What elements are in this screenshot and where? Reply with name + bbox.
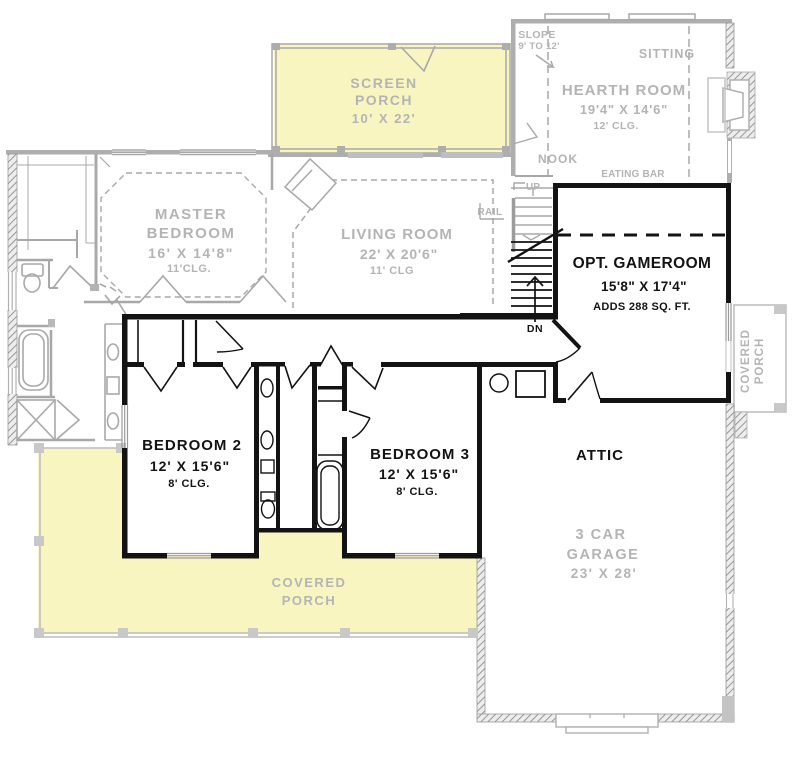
svg-text:SCREEN: SCREEN <box>350 75 417 91</box>
svg-text:SITTING: SITTING <box>639 47 695 61</box>
svg-text:COVERED: COVERED <box>272 575 347 590</box>
svg-text:12' X 15'6": 12' X 15'6" <box>150 458 230 474</box>
svg-text:LIVING ROOM: LIVING ROOM <box>341 226 453 243</box>
svg-text:16' X 14'8": 16' X 14'8" <box>148 245 234 261</box>
svg-text:EATING BAR: EATING BAR <box>601 169 665 180</box>
svg-text:HEARTH ROOM: HEARTH ROOM <box>562 82 686 99</box>
svg-text:19'4" X 14'6": 19'4" X 14'6" <box>580 102 668 117</box>
svg-text:11'CLG.: 11'CLG. <box>167 263 211 275</box>
svg-text:11' CLG: 11' CLG <box>370 265 414 277</box>
svg-text:DN: DN <box>527 323 543 335</box>
svg-text:3 CAR: 3 CAR <box>575 527 626 543</box>
svg-text:SLOPE: SLOPE <box>518 29 556 41</box>
svg-text:MASTER: MASTER <box>155 206 227 223</box>
svg-text:BEDROOM: BEDROOM <box>147 225 236 242</box>
svg-text:ATTIC: ATTIC <box>576 447 624 464</box>
svg-text:8' CLG.: 8' CLG. <box>396 486 438 498</box>
svg-text:12' X 15'6": 12' X 15'6" <box>379 466 459 482</box>
svg-text:ADDS 288 SQ. FT.: ADDS 288 SQ. FT. <box>593 301 691 313</box>
svg-text:PORCH: PORCH <box>282 593 336 608</box>
svg-text:22' X 20'6": 22' X 20'6" <box>360 246 438 262</box>
svg-text:PORCH: PORCH <box>754 338 766 385</box>
svg-text:23' X 28': 23' X 28' <box>571 566 637 581</box>
svg-text:OPT. GAMEROOM: OPT. GAMEROOM <box>573 255 712 272</box>
svg-text:8' CLG.: 8' CLG. <box>168 478 210 490</box>
svg-text:GARAGE: GARAGE <box>567 547 640 563</box>
svg-text:12' CLG.: 12' CLG. <box>593 120 638 132</box>
svg-text:RAIL: RAIL <box>477 207 502 218</box>
svg-text:PORCH: PORCH <box>355 92 413 108</box>
svg-text:9' TO 12': 9' TO 12' <box>518 41 559 52</box>
svg-text:NOOK: NOOK <box>538 152 578 166</box>
svg-text:COVERED: COVERED <box>740 329 752 393</box>
svg-text:UP: UP <box>526 182 540 193</box>
svg-text:10' X 22': 10' X 22' <box>352 111 417 126</box>
svg-text:BEDROOM 2: BEDROOM 2 <box>142 437 242 454</box>
svg-text:15'8" X 17'4": 15'8" X 17'4" <box>601 279 687 294</box>
svg-text:BEDROOM 3: BEDROOM 3 <box>370 446 470 463</box>
